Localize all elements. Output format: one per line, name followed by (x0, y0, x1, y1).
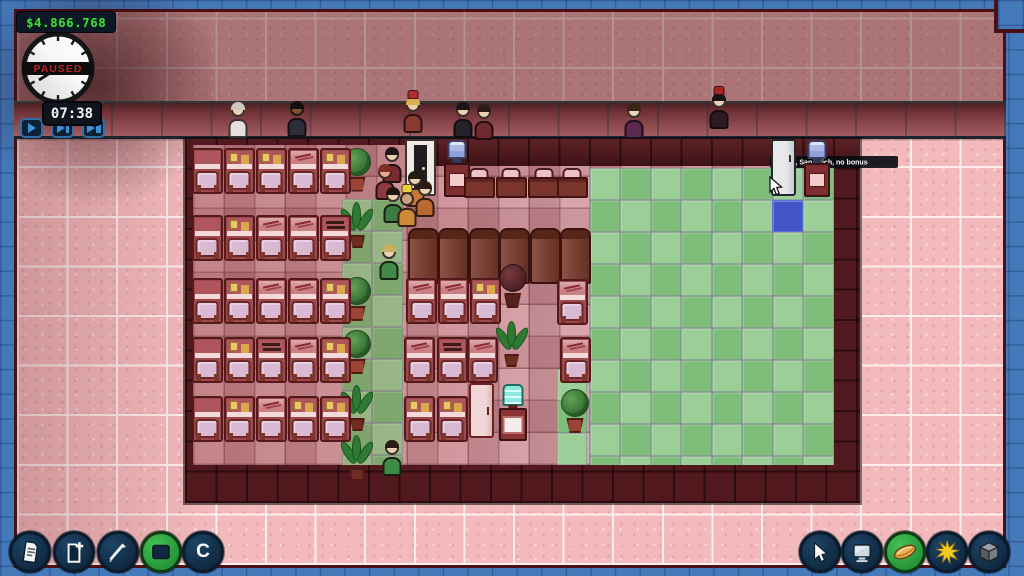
desk-legs (324, 315, 347, 322)
potted-plant[interactable] (562, 389, 589, 433)
person-hair (382, 244, 396, 252)
money-value: $4.866.768 (26, 15, 106, 30)
desk-surface (407, 399, 432, 412)
zone-tile (372, 359, 403, 391)
desk-legs (324, 374, 347, 381)
person-hat (714, 86, 725, 95)
desk[interactable] (256, 396, 287, 442)
person-head (400, 192, 414, 206)
person-body (710, 110, 729, 129)
zone-tile (803, 424, 833, 456)
desk-edge (563, 353, 588, 358)
desk-edge (227, 353, 252, 358)
desk-surface (227, 218, 252, 231)
zone-tile (620, 328, 651, 360)
zone-tile (681, 328, 712, 360)
desk-surface (323, 340, 348, 353)
zone-tile (712, 392, 743, 424)
zone-tile (590, 392, 621, 424)
desk[interactable] (557, 279, 588, 325)
desk-legs (442, 315, 465, 322)
desk[interactable] (192, 396, 223, 442)
desk-surface (441, 281, 466, 294)
zone-tile (620, 200, 651, 232)
plant-leaves (561, 389, 589, 417)
desk[interactable] (192, 278, 223, 324)
toolbar-objects-3d[interactable] (968, 531, 1010, 573)
zone-tile (681, 200, 712, 232)
zone-tile (651, 424, 682, 456)
desk[interactable] (320, 278, 351, 324)
toolbar-new-document[interactable] (53, 531, 95, 573)
desk-legs (324, 252, 347, 259)
mouse-cursor-icon (768, 176, 784, 196)
desk-edge (407, 412, 432, 417)
desk-legs (410, 315, 433, 322)
tall-cabinet[interactable] (560, 228, 591, 284)
document-icon (17, 539, 43, 565)
zone-tile (590, 360, 621, 392)
desk-edge (259, 294, 284, 299)
zone-tile (681, 392, 712, 424)
desk-edge (195, 412, 220, 417)
desk[interactable] (192, 148, 223, 194)
desk-surface (195, 399, 220, 412)
desk-legs (441, 433, 464, 440)
desk[interactable] (288, 148, 319, 194)
desk[interactable] (437, 337, 468, 383)
time-display: 07:38 (42, 101, 102, 126)
desk-legs (292, 374, 315, 381)
person-hair (418, 181, 432, 189)
zone-tile (651, 328, 682, 360)
speed-play[interactable] (20, 118, 43, 138)
zone-tile (620, 232, 651, 264)
desk-edge (440, 412, 465, 417)
desk[interactable] (256, 148, 287, 194)
desk-legs (471, 374, 494, 381)
plant-pot (348, 177, 365, 192)
person-hair (385, 440, 399, 448)
desk-edge (259, 353, 284, 358)
desk-legs (260, 374, 283, 381)
desk-body (496, 177, 527, 198)
desk-legs (260, 252, 283, 259)
zone-tile (651, 264, 682, 296)
zone-tile (681, 232, 712, 264)
water-bottle (807, 140, 826, 159)
desk-surface (440, 399, 465, 412)
desk-surface (409, 281, 434, 294)
desk-legs (228, 374, 251, 381)
desk-legs (292, 252, 315, 259)
tall-cabinet[interactable] (530, 228, 561, 284)
zone-tile (651, 296, 682, 328)
room-tool-icon (148, 539, 174, 565)
zone-tile (372, 391, 403, 423)
desk-legs (196, 315, 219, 322)
zone-tile (803, 296, 833, 328)
zone-tile (651, 200, 682, 232)
paused-label: PAUSED (34, 63, 83, 75)
desk-legs (196, 433, 219, 440)
desk-surface (259, 281, 284, 294)
desk-legs (408, 433, 431, 440)
sidewalk (14, 101, 1006, 139)
desk-edge (291, 353, 316, 358)
zone-tile (620, 168, 651, 200)
time-value: 07:38 (51, 106, 93, 122)
desk[interactable] (224, 215, 255, 261)
desk-surface (259, 151, 284, 164)
zone-tile (712, 200, 743, 232)
desk-facing-up[interactable] (557, 168, 588, 198)
zone-tile (712, 456, 743, 465)
desk[interactable] (256, 215, 287, 261)
desk[interactable] (560, 337, 591, 383)
zone-tile (803, 264, 833, 296)
desk-body (557, 177, 588, 198)
zone-tile (803, 200, 833, 232)
plant-pot (350, 418, 365, 431)
desk-edge (259, 164, 284, 169)
zone-tile (620, 456, 651, 465)
desk[interactable] (288, 278, 319, 324)
zone-tile (651, 360, 682, 392)
desk-edge (291, 412, 316, 417)
desk-legs (260, 185, 283, 192)
pink-fridge[interactable] (469, 383, 494, 438)
zone-tile (590, 328, 621, 360)
desk[interactable] (288, 215, 319, 261)
zone-tile (773, 296, 804, 328)
toolbar-reports[interactable] (9, 531, 51, 573)
desk[interactable] (256, 337, 287, 383)
person-body (380, 261, 399, 280)
desk-surface (291, 151, 316, 164)
dark-plant[interactable] (499, 264, 526, 308)
desk[interactable] (224, 278, 255, 324)
zone-tile (712, 296, 743, 328)
desk-surface (323, 281, 348, 294)
person-body (625, 120, 644, 139)
plant-pot (504, 293, 521, 308)
person-hat (402, 184, 413, 193)
desk-facing-up[interactable] (528, 168, 559, 198)
tall-cabinet[interactable] (469, 228, 500, 284)
game-screen: $4.866.768 PAUSED 07:38 Fridge, Sandwic (0, 0, 1024, 576)
zone-tile (681, 264, 712, 296)
desk-edge (409, 294, 434, 299)
desk[interactable] (192, 337, 223, 383)
zone-tile (742, 456, 773, 465)
zone-tile (803, 392, 833, 424)
person-office[interactable] (381, 436, 403, 476)
zone-tile (803, 456, 833, 465)
person-body (383, 457, 402, 476)
desk-legs (292, 185, 315, 192)
desk-edge (195, 353, 220, 358)
tall-cabinet[interactable] (408, 228, 439, 284)
person-office[interactable] (396, 187, 418, 227)
zone-tile (590, 456, 621, 465)
desk-edge (291, 294, 316, 299)
monitor-icon (849, 539, 875, 565)
desk[interactable] (320, 215, 351, 261)
cooler-base (499, 408, 527, 441)
toolbar-center-view[interactable]: C (182, 531, 224, 573)
desk-surface (195, 281, 220, 294)
desk-legs (228, 433, 251, 440)
desk-surface (195, 340, 220, 353)
desk-surface (473, 281, 498, 294)
desk[interactable] (470, 278, 501, 324)
pen-icon (105, 539, 131, 565)
zone-tile (712, 328, 743, 360)
game-clock[interactable]: PAUSED (20, 30, 96, 106)
desk-surface (291, 218, 316, 231)
desk[interactable] (288, 396, 319, 442)
zone-tile (590, 264, 621, 296)
zone-tile (773, 232, 804, 264)
zone-tile (681, 168, 712, 200)
desk-facing-up[interactable] (496, 168, 527, 198)
desk-surface (227, 340, 252, 353)
desk-surface (407, 340, 432, 353)
zone-tile (651, 168, 682, 200)
desk-surface (291, 281, 316, 294)
money-counter: $4.866.768 (16, 11, 116, 33)
toolbar-room-tool[interactable] (140, 531, 182, 573)
desk-legs (324, 185, 347, 192)
person-hair (385, 147, 399, 155)
desk-edge (441, 294, 466, 299)
paused-banner: PAUSED (22, 62, 94, 75)
desk-edge (470, 353, 495, 358)
zone-tile (620, 424, 651, 456)
toolbar-select-tool[interactable] (799, 531, 841, 573)
plant-pot (350, 235, 365, 248)
zone-tile (620, 264, 651, 296)
yucca-plant[interactable] (343, 435, 371, 481)
desk-surface (259, 218, 284, 231)
hotdog-icon (891, 538, 919, 566)
zone-tile (681, 456, 712, 465)
desk-edge (259, 412, 284, 417)
person-hair (456, 102, 470, 110)
zone-tile (651, 456, 682, 465)
desk-surface (323, 399, 348, 412)
zone-tile (742, 424, 773, 456)
tall-cabinet[interactable] (438, 228, 469, 284)
desk-edge (407, 353, 432, 358)
desk[interactable] (467, 337, 498, 383)
water-cooler-station[interactable] (802, 140, 832, 197)
zone-tile (803, 328, 833, 360)
person-street (473, 100, 495, 140)
zone-tile (773, 456, 804, 465)
desk-surface (259, 399, 284, 412)
plant-pot (348, 306, 365, 321)
desk-edge (195, 294, 220, 299)
desk-edge (323, 353, 348, 358)
desk-edge (195, 164, 220, 169)
desk-legs (196, 185, 219, 192)
toolbar-computers[interactable] (841, 531, 883, 573)
desk[interactable] (320, 148, 351, 194)
toolbar-food[interactable] (884, 531, 926, 573)
cube-icon (976, 539, 1002, 565)
desk-legs (564, 374, 587, 381)
zone-tile (742, 328, 773, 360)
person-hair (627, 103, 641, 111)
zone-tile (590, 424, 621, 456)
desk-surface (227, 281, 252, 294)
person-street (452, 98, 474, 138)
desk-edge (440, 353, 465, 358)
zone-tile (712, 264, 743, 296)
desk-legs (408, 374, 431, 381)
desk[interactable] (320, 337, 351, 383)
person-street (227, 98, 249, 138)
desk[interactable] (404, 396, 435, 442)
desk-edge (259, 231, 284, 236)
snack-machine (804, 163, 830, 197)
desk-surface (195, 218, 220, 231)
zone-tile (372, 327, 403, 359)
person-body (229, 119, 248, 138)
zone-tile (681, 296, 712, 328)
zone-tile (742, 392, 773, 424)
desk-edge (227, 412, 252, 417)
desk-legs (441, 374, 464, 381)
zone-tile (803, 232, 833, 264)
toolbar-draw-tool[interactable] (97, 531, 139, 573)
desk-surface (323, 151, 348, 164)
desk[interactable] (256, 278, 287, 324)
desk-legs (260, 433, 283, 440)
plant-pot (504, 354, 519, 367)
desk-surface (291, 399, 316, 412)
cursor-icon (807, 539, 833, 565)
plant-pot (350, 468, 365, 481)
desk[interactable] (437, 396, 468, 442)
desk[interactable] (224, 396, 255, 442)
person-body (454, 119, 473, 138)
desk-facing-up[interactable] (464, 168, 495, 198)
zone-tile (773, 424, 804, 456)
zone-tile (742, 232, 773, 264)
toolbar-label: C (196, 541, 210, 563)
zone-tile (590, 200, 621, 232)
person-street (623, 99, 645, 139)
person-body (398, 208, 417, 227)
desk[interactable] (224, 148, 255, 194)
desk-surface (323, 218, 348, 231)
zone-tile (651, 392, 682, 424)
plant-leaves (499, 264, 526, 292)
desk-edge (195, 231, 220, 236)
desk-legs (474, 315, 497, 322)
yucca-plant[interactable] (498, 321, 526, 367)
person-street (286, 97, 308, 137)
desk-edge (323, 412, 348, 417)
zone-tile (742, 296, 773, 328)
desk-legs (561, 316, 584, 323)
toolbar-daylight[interactable] (926, 531, 968, 573)
person-body (416, 198, 435, 217)
desk-body (464, 177, 495, 198)
desk-surface (227, 399, 252, 412)
water-bottle (447, 140, 466, 159)
zone-tile (681, 360, 712, 392)
add-document-icon (61, 539, 87, 565)
desk-surface (563, 340, 588, 353)
zone-tile (712, 360, 743, 392)
desk-edge (323, 294, 348, 299)
zone-tile (773, 328, 804, 360)
desk-surface (291, 340, 316, 353)
desk-edge (323, 164, 348, 169)
person-street (708, 89, 730, 129)
zone-tile (742, 264, 773, 296)
water-bottle (503, 384, 524, 406)
desk-legs (228, 315, 251, 322)
person-body (288, 118, 307, 137)
desk-legs (292, 315, 315, 322)
desk-edge (291, 164, 316, 169)
zone-tile (590, 168, 621, 200)
zone-tile (712, 168, 743, 200)
zone-tile (773, 264, 804, 296)
zone-tile (651, 232, 682, 264)
desk[interactable] (192, 215, 223, 261)
zone-tile (620, 392, 651, 424)
blue-tile (772, 200, 803, 232)
zone-tile (742, 360, 773, 392)
desk-surface (470, 340, 495, 353)
desk-surface (560, 282, 585, 295)
desk[interactable] (224, 337, 255, 383)
desk-legs (228, 252, 251, 259)
plant-pot (567, 418, 584, 433)
zone-tile (557, 433, 588, 465)
desk[interactable] (288, 337, 319, 383)
desk-legs (196, 252, 219, 259)
zone-tile (712, 424, 743, 456)
water-cooler[interactable] (498, 384, 528, 441)
desk-edge (323, 231, 348, 236)
person-body (404, 114, 423, 133)
desk[interactable] (406, 278, 437, 324)
desk[interactable] (404, 337, 435, 383)
desk-edge (560, 295, 585, 300)
desk-edge (291, 231, 316, 236)
desk-surface (259, 340, 284, 353)
desk-edge (227, 231, 252, 236)
person-body (475, 121, 494, 140)
desk-legs (196, 374, 219, 381)
person-hair (231, 102, 245, 110)
person-office[interactable] (378, 240, 400, 280)
map-edge (994, 0, 1024, 33)
zone-tile (620, 296, 651, 328)
person-hair (290, 101, 304, 109)
zone-tile (620, 360, 651, 392)
person-hair (378, 164, 392, 172)
sun-icon (933, 538, 961, 566)
desk[interactable] (438, 278, 469, 324)
